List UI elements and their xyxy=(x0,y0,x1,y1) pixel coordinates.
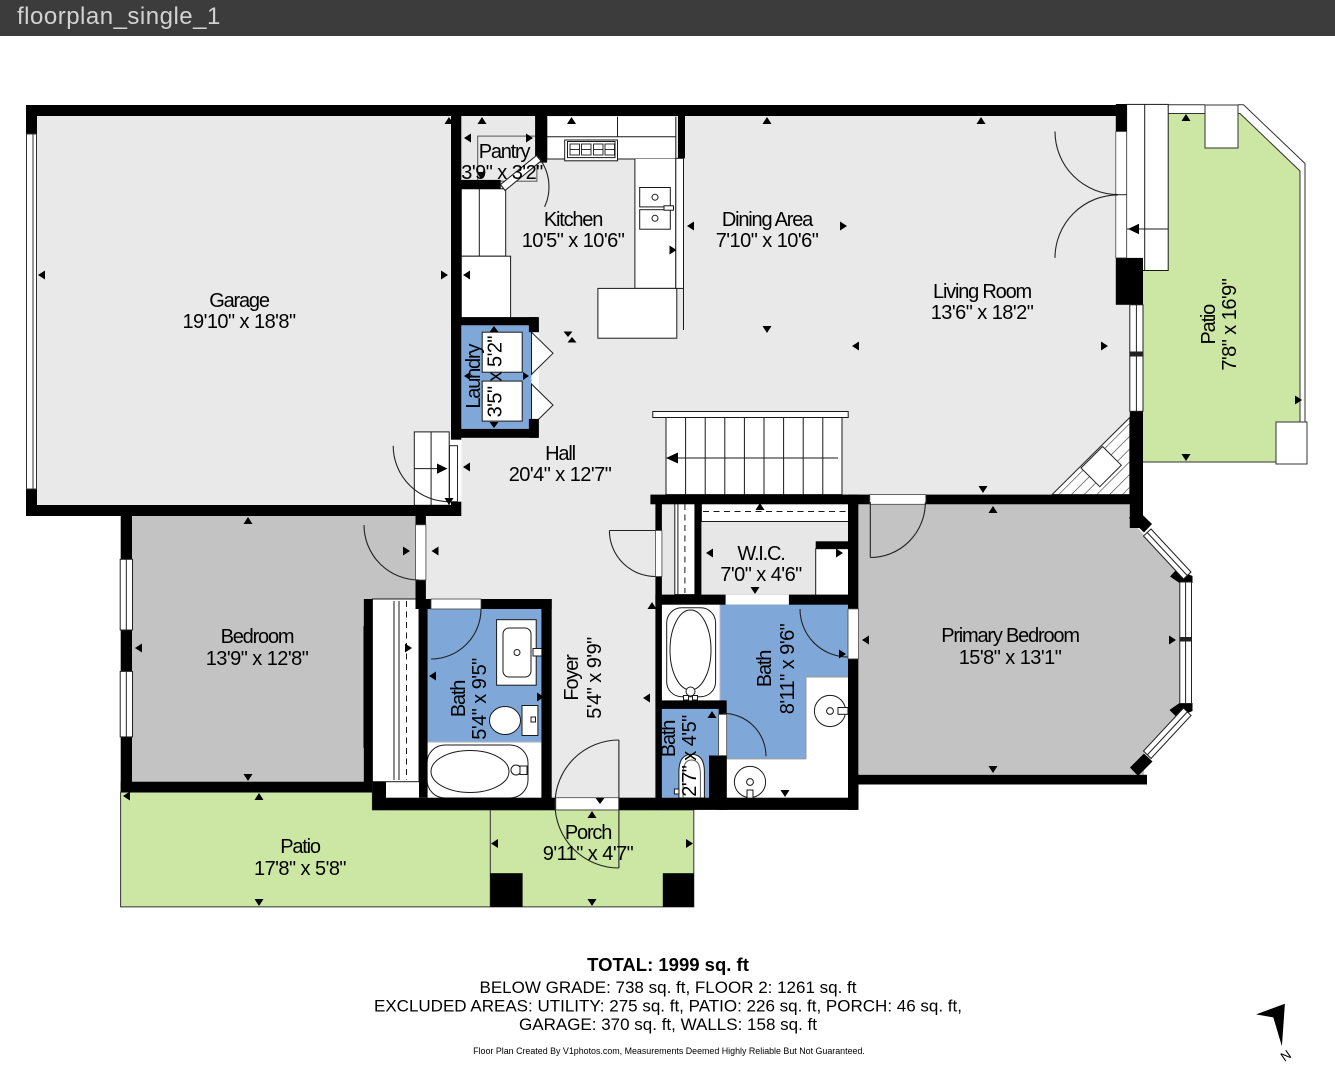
svg-text:Porch: Porch xyxy=(565,822,611,844)
svg-text:17'8" x 5'8": 17'8" x 5'8" xyxy=(254,858,346,880)
svg-text:3'5" x 5'2": 3'5" x 5'2" xyxy=(484,336,506,418)
svg-text:7'10" x 10'6": 7'10" x 10'6" xyxy=(716,230,819,252)
svg-text:W.I.C.: W.I.C. xyxy=(737,543,784,565)
svg-text:5'4" x 9'9": 5'4" x 9'9" xyxy=(584,637,606,719)
svg-text:EXCLUDED AREAS: UTILITY: 275 s: EXCLUDED AREAS: UTILITY: 275 sq. ft, PAT… xyxy=(374,997,962,1016)
svg-text:15'8" x 13'1": 15'8" x 13'1" xyxy=(959,647,1062,669)
svg-text:Foyer: Foyer xyxy=(561,654,583,701)
svg-text:Living Room: Living Room xyxy=(933,281,1032,303)
svg-text:N: N xyxy=(1278,1047,1294,1065)
svg-text:Bath: Bath xyxy=(658,721,680,757)
svg-text:Dining Area: Dining Area xyxy=(722,209,814,231)
svg-text:Patio: Patio xyxy=(280,836,321,858)
svg-text:Garage: Garage xyxy=(209,290,270,312)
svg-text:Primary Bedroom: Primary Bedroom xyxy=(941,625,1079,647)
svg-text:GARAGE: 370 sq. ft, WALLS: 158: GARAGE: 370 sq. ft, WALLS: 158 sq. ft xyxy=(519,1015,817,1034)
svg-text:20'4" x 12'7": 20'4" x 12'7" xyxy=(509,464,612,486)
svg-text:9'11" x 4'7": 9'11" x 4'7" xyxy=(543,843,634,865)
svg-text:BELOW GRADE: 738 sq. ft, FLOOR: BELOW GRADE: 738 sq. ft, FLOOR 2: 1261 s… xyxy=(480,978,857,997)
svg-text:2'7" x 4'5": 2'7" x 4'5" xyxy=(679,715,701,797)
svg-text:Patio: Patio xyxy=(1198,304,1220,345)
svg-text:7'8" x 16'9": 7'8" x 16'9" xyxy=(1219,278,1241,370)
svg-text:Bath: Bath xyxy=(448,681,470,717)
svg-text:Floor Plan Created By V1photos: Floor Plan Created By V1photos.com, Meas… xyxy=(473,1046,865,1056)
svg-text:7'0" x 4'6": 7'0" x 4'6" xyxy=(720,564,802,586)
svg-text:10'5" x 10'6": 10'5" x 10'6" xyxy=(522,230,625,252)
svg-text:Hall: Hall xyxy=(545,443,575,465)
svg-text:TOTAL: 1999 sq. ft: TOTAL: 1999 sq. ft xyxy=(587,954,749,975)
svg-text:3'9" x 3'2": 3'9" x 3'2" xyxy=(461,162,543,184)
svg-text:Bath: Bath xyxy=(754,651,776,687)
svg-text:Kitchen: Kitchen xyxy=(544,209,602,231)
svg-text:8'11" x 9'6": 8'11" x 9'6" xyxy=(777,623,799,714)
svg-text:5'4" x 9'5": 5'4" x 9'5" xyxy=(469,658,491,740)
svg-text:Bedroom: Bedroom xyxy=(221,626,294,648)
svg-text:19'10" x 18'8": 19'10" x 18'8" xyxy=(182,311,296,333)
svg-text:13'6" x 18'2": 13'6" x 18'2" xyxy=(931,302,1034,324)
svg-text:Pantry: Pantry xyxy=(479,141,531,163)
svg-text:Laundry: Laundry xyxy=(463,344,485,409)
svg-text:13'9" x 12'8": 13'9" x 12'8" xyxy=(206,648,309,670)
